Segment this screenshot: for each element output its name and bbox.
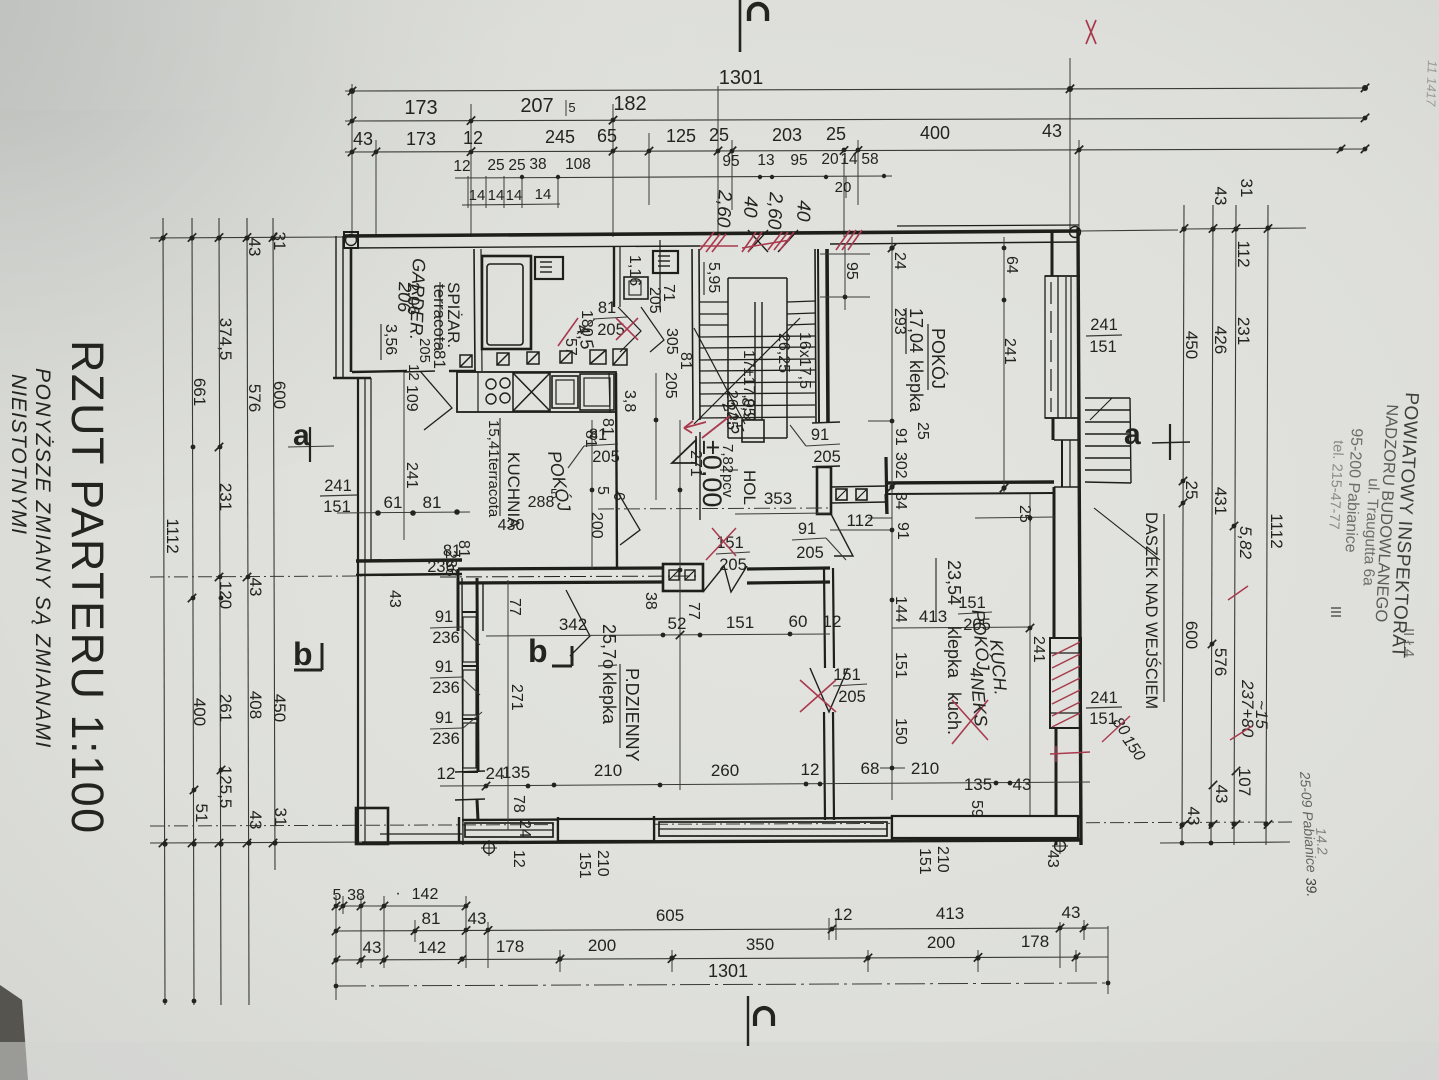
svg-text:12: 12 (437, 764, 456, 783)
svg-text:210: 210 (934, 846, 951, 873)
svg-text:RZUT PARTERU 1:100: RZUT PARTERU 1:100 (62, 340, 113, 835)
svg-text:91: 91 (435, 608, 453, 626)
svg-text:1112: 1112 (163, 518, 182, 553)
svg-text:81: 81 (455, 540, 472, 558)
svg-text:142: 142 (412, 886, 439, 903)
svg-text:91: 91 (435, 658, 453, 676)
svg-text:600: 600 (270, 381, 289, 409)
svg-text:~15: ~15 (1252, 700, 1271, 729)
svg-text:12: 12 (510, 850, 527, 868)
svg-text:236: 236 (432, 730, 460, 748)
svg-text:206: 206 (394, 281, 415, 314)
svg-text:81: 81 (598, 299, 616, 317)
svg-text:302: 302 (892, 452, 909, 479)
svg-text:17,04: 17,04 (906, 308, 926, 353)
svg-text:205: 205 (719, 556, 747, 574)
svg-text:81: 81 (589, 426, 607, 444)
svg-text:43: 43 (1044, 850, 1061, 868)
svg-text:25: 25 (508, 157, 525, 174)
svg-text:13: 13 (757, 152, 774, 169)
svg-text:200: 200 (588, 936, 616, 955)
svg-text:576: 576 (1211, 648, 1230, 676)
svg-text:408: 408 (246, 691, 265, 719)
svg-text:151: 151 (916, 848, 933, 875)
svg-text:43: 43 (1062, 903, 1081, 922)
svg-text:43: 43 (386, 590, 403, 608)
svg-text:205: 205 (592, 448, 620, 466)
svg-text:25: 25 (487, 157, 504, 174)
svg-text:77: 77 (506, 598, 523, 616)
svg-text:43: 43 (1211, 187, 1230, 206)
svg-text:5,82: 5,82 (1236, 526, 1255, 560)
svg-text:205: 205 (796, 544, 824, 562)
svg-text:14: 14 (488, 187, 505, 204)
svg-text:413: 413 (919, 607, 947, 626)
svg-text:205: 205 (838, 688, 866, 706)
svg-text:kuch.: kuch. (944, 692, 964, 735)
svg-text:20: 20 (835, 179, 852, 196)
svg-text:68: 68 (861, 759, 880, 778)
svg-text:178: 178 (1021, 932, 1049, 951)
svg-text:b: b (528, 633, 548, 669)
svg-text:43: 43 (1212, 785, 1231, 804)
svg-text:11 1417: 11 1417 (1423, 60, 1439, 107)
svg-text:31: 31 (270, 232, 289, 251)
svg-text:25: 25 (1016, 505, 1033, 523)
svg-text:6: 6 (610, 492, 627, 501)
svg-text:342: 342 (559, 615, 587, 634)
svg-text:NIEISTOTNYMI: NIEISTOTNYMI (7, 374, 30, 535)
svg-text:91: 91 (811, 426, 829, 444)
svg-text:431: 431 (1211, 487, 1230, 515)
svg-text:241: 241 (1030, 636, 1047, 663)
svg-text:65: 65 (597, 126, 617, 146)
svg-text:350: 350 (746, 935, 774, 954)
svg-text:151: 151 (1089, 338, 1117, 356)
svg-text:34: 34 (892, 492, 909, 510)
svg-text:142: 142 (418, 938, 446, 957)
svg-text:5: 5 (568, 100, 575, 115)
svg-text:450: 450 (270, 694, 289, 722)
svg-text:182: 182 (613, 93, 646, 115)
svg-text:III: III (1327, 606, 1343, 618)
svg-text:klepka: klepka (599, 672, 619, 725)
svg-text:HOL: HOL (740, 470, 759, 505)
svg-text:150: 150 (892, 718, 909, 745)
svg-text:426: 426 (1211, 326, 1230, 354)
svg-text:95: 95 (790, 152, 807, 169)
svg-text:2,60: 2,60 (712, 189, 735, 228)
svg-text:12: 12 (823, 612, 842, 631)
svg-text:81: 81 (423, 493, 442, 512)
svg-text:5: 5 (594, 486, 611, 495)
svg-text:200: 200 (588, 512, 605, 539)
svg-text:305: 305 (663, 328, 680, 355)
svg-text:430: 430 (498, 517, 525, 534)
svg-text:a: a (1124, 418, 1141, 451)
svg-text:P.DZIENNY: P.DZIENNY (622, 668, 642, 762)
svg-text:20: 20 (821, 151, 839, 168)
svg-text:12: 12 (463, 128, 483, 148)
svg-text:61: 61 (384, 493, 403, 512)
svg-text:210: 210 (911, 759, 939, 778)
svg-text:3,8: 3,8 (621, 390, 638, 412)
svg-text:173: 173 (404, 97, 437, 119)
svg-text:71: 71 (660, 284, 677, 302)
svg-text:125: 125 (666, 126, 696, 146)
svg-text:245: 245 (545, 127, 575, 147)
svg-text:271: 271 (687, 450, 704, 477)
svg-text:II Ł4: II Ł4 (1400, 628, 1417, 657)
svg-text:600: 600 (1182, 621, 1201, 649)
svg-text:12: 12 (834, 905, 853, 924)
svg-text:205: 205 (662, 372, 679, 399)
svg-text:31: 31 (271, 808, 290, 827)
svg-text:95: 95 (843, 262, 860, 280)
svg-text:293: 293 (891, 308, 908, 335)
svg-text:151: 151 (892, 652, 909, 679)
svg-text:374,5: 374,5 (216, 318, 235, 361)
svg-text:64: 64 (1003, 256, 1020, 274)
svg-text:91: 91 (798, 520, 816, 538)
svg-text:24: 24 (891, 252, 908, 270)
svg-text:3,56: 3,56 (382, 324, 399, 355)
svg-text:38: 38 (347, 887, 365, 904)
svg-text:5: 5 (333, 887, 342, 904)
svg-text:38: 38 (529, 156, 546, 173)
svg-text:40: 40 (792, 200, 814, 223)
svg-text:112: 112 (846, 511, 873, 530)
svg-text:151: 151 (576, 852, 593, 879)
svg-text:120: 120 (216, 581, 235, 609)
svg-text:109: 109 (403, 385, 420, 412)
svg-text:210: 210 (594, 761, 622, 780)
svg-text:231: 231 (1234, 317, 1253, 345)
svg-text:200: 200 (927, 933, 955, 952)
svg-text:135: 135 (964, 775, 992, 794)
svg-text:241: 241 (1001, 338, 1018, 365)
svg-text:205: 205 (813, 448, 841, 466)
svg-text:236: 236 (432, 679, 460, 697)
svg-text:14.2: 14.2 (1313, 827, 1331, 856)
svg-text:·: · (395, 885, 400, 902)
svg-text:2,60: 2,60 (763, 191, 786, 230)
svg-text:173: 173 (406, 129, 436, 149)
svg-text:43: 43 (246, 811, 265, 830)
svg-text:43: 43 (468, 909, 487, 928)
svg-text:151: 151 (833, 666, 861, 684)
svg-text:91: 91 (892, 428, 909, 446)
svg-text:400: 400 (920, 123, 950, 143)
svg-text:b: b (293, 636, 313, 672)
svg-text:576: 576 (245, 384, 264, 412)
svg-text:43: 43 (353, 129, 373, 149)
svg-text:43: 43 (363, 938, 382, 957)
svg-text:271: 271 (508, 684, 525, 711)
svg-text:klepka: klepka (944, 626, 964, 679)
svg-text:14: 14 (469, 187, 486, 204)
svg-text:1301: 1301 (708, 961, 748, 981)
svg-text:413: 413 (936, 904, 964, 923)
svg-text:231: 231 (216, 483, 235, 511)
svg-text:PONYŻSZE ZMIANY SĄ ZMIANAMI: PONYŻSZE ZMIANY SĄ ZMIANAMI (31, 368, 54, 749)
svg-text:31: 31 (1237, 179, 1256, 198)
svg-text:91: 91 (435, 709, 453, 727)
svg-text:144: 144 (892, 596, 909, 623)
svg-text:241: 241 (403, 462, 420, 489)
svg-text:661: 661 (190, 378, 209, 406)
svg-text:178: 178 (496, 937, 524, 956)
svg-text:210: 210 (594, 850, 611, 877)
svg-text:112: 112 (1234, 240, 1253, 267)
svg-text:5,95: 5,95 (705, 262, 722, 293)
svg-text:26,25: 26,25 (775, 333, 792, 373)
svg-text:207: 207 (520, 95, 553, 117)
svg-text:43: 43 (1042, 121, 1062, 141)
svg-text:77: 77 (685, 602, 702, 620)
svg-text:a: a (293, 419, 310, 452)
svg-text:60: 60 (789, 612, 808, 631)
svg-text:107: 107 (1235, 768, 1254, 796)
svg-text:25: 25 (1182, 481, 1201, 500)
svg-text:605: 605 (656, 906, 684, 925)
svg-text:151: 151 (726, 613, 754, 632)
svg-text:25: 25 (826, 124, 846, 144)
svg-text:52: 52 (668, 614, 687, 633)
svg-text:16x17,5: 16x17,5 (796, 332, 813, 389)
svg-text:260: 260 (711, 761, 739, 780)
svg-text:51: 51 (192, 804, 211, 823)
svg-text:1301: 1301 (719, 67, 764, 89)
svg-text:25: 25 (914, 422, 931, 440)
svg-text:236: 236 (432, 629, 460, 647)
svg-text:38: 38 (642, 592, 659, 610)
svg-text:1,16: 1,16 (626, 255, 643, 286)
svg-text:25,7o: 25,7o (599, 624, 619, 669)
svg-text:DASZEK NAD WEJŚCIEM: DASZEK NAD WEJŚCIEM (1142, 512, 1161, 709)
svg-text:1112: 1112 (1267, 513, 1286, 548)
svg-text:261: 261 (216, 694, 235, 722)
svg-text:43: 43 (245, 238, 264, 257)
svg-text:24: 24 (516, 820, 533, 838)
svg-text:39.: 39. (1303, 877, 1320, 898)
svg-text:241: 241 (324, 477, 352, 495)
svg-text:25: 25 (709, 125, 729, 145)
svg-text:81: 81 (430, 350, 449, 369)
svg-text:108: 108 (565, 156, 591, 173)
svg-text:95: 95 (722, 153, 739, 170)
svg-text:203: 203 (772, 125, 802, 145)
svg-text:135: 135 (502, 763, 530, 782)
svg-text:12: 12 (453, 158, 470, 175)
svg-text:450: 450 (1182, 331, 1201, 359)
svg-text:241: 241 (1090, 689, 1118, 707)
svg-text:78: 78 (510, 795, 527, 813)
svg-text:POKÓJ: POKÓJ (928, 328, 949, 389)
svg-text:43: 43 (1013, 775, 1032, 794)
svg-text:58: 58 (861, 151, 878, 168)
svg-text:14: 14 (506, 187, 523, 204)
svg-text:353: 353 (764, 489, 792, 508)
svg-text:400: 400 (190, 698, 209, 726)
svg-text:12: 12 (801, 760, 820, 779)
svg-text:241: 241 (1090, 316, 1118, 334)
svg-text:43: 43 (246, 578, 265, 597)
svg-text:klepka: klepka (906, 360, 926, 413)
svg-text:91: 91 (894, 522, 911, 540)
svg-text:40: 40 (739, 196, 761, 219)
svg-text:81: 81 (422, 909, 441, 928)
svg-text:14: 14 (535, 186, 552, 203)
